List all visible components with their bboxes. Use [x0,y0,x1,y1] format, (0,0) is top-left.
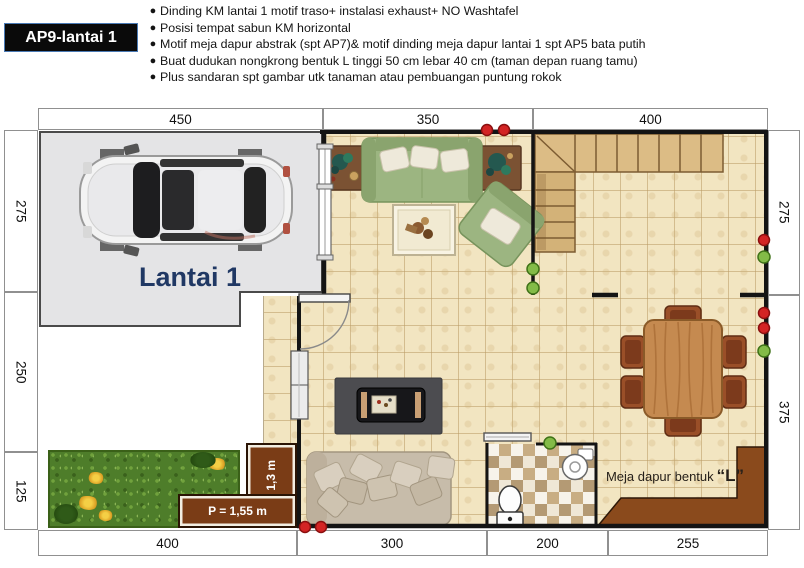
kitchen-counter [597,447,766,527]
sofa-bottom [307,452,455,525]
window-symbol [317,144,333,260]
toilet [499,486,521,514]
staircase [535,134,723,252]
entry-door [299,294,350,349]
sink [563,455,588,480]
bench-horizontal: P = 1,55 m [178,494,297,528]
kitchen-counter-label: Meja dapur bentuk “L” [596,466,754,486]
wall-cabinet [291,351,308,419]
sofa-three-seat [362,138,482,202]
tv-unit [335,378,442,434]
side-table-left [327,146,365,190]
car-top-view [80,143,292,257]
bathroom-fixtures [484,433,593,527]
dining-set [621,306,746,436]
coffee-table [393,205,455,255]
floor-label: Lantai 1 [110,262,270,293]
floor-plan-page: { "header": { "title": "AP9-lantai 1", "… [0,0,804,568]
